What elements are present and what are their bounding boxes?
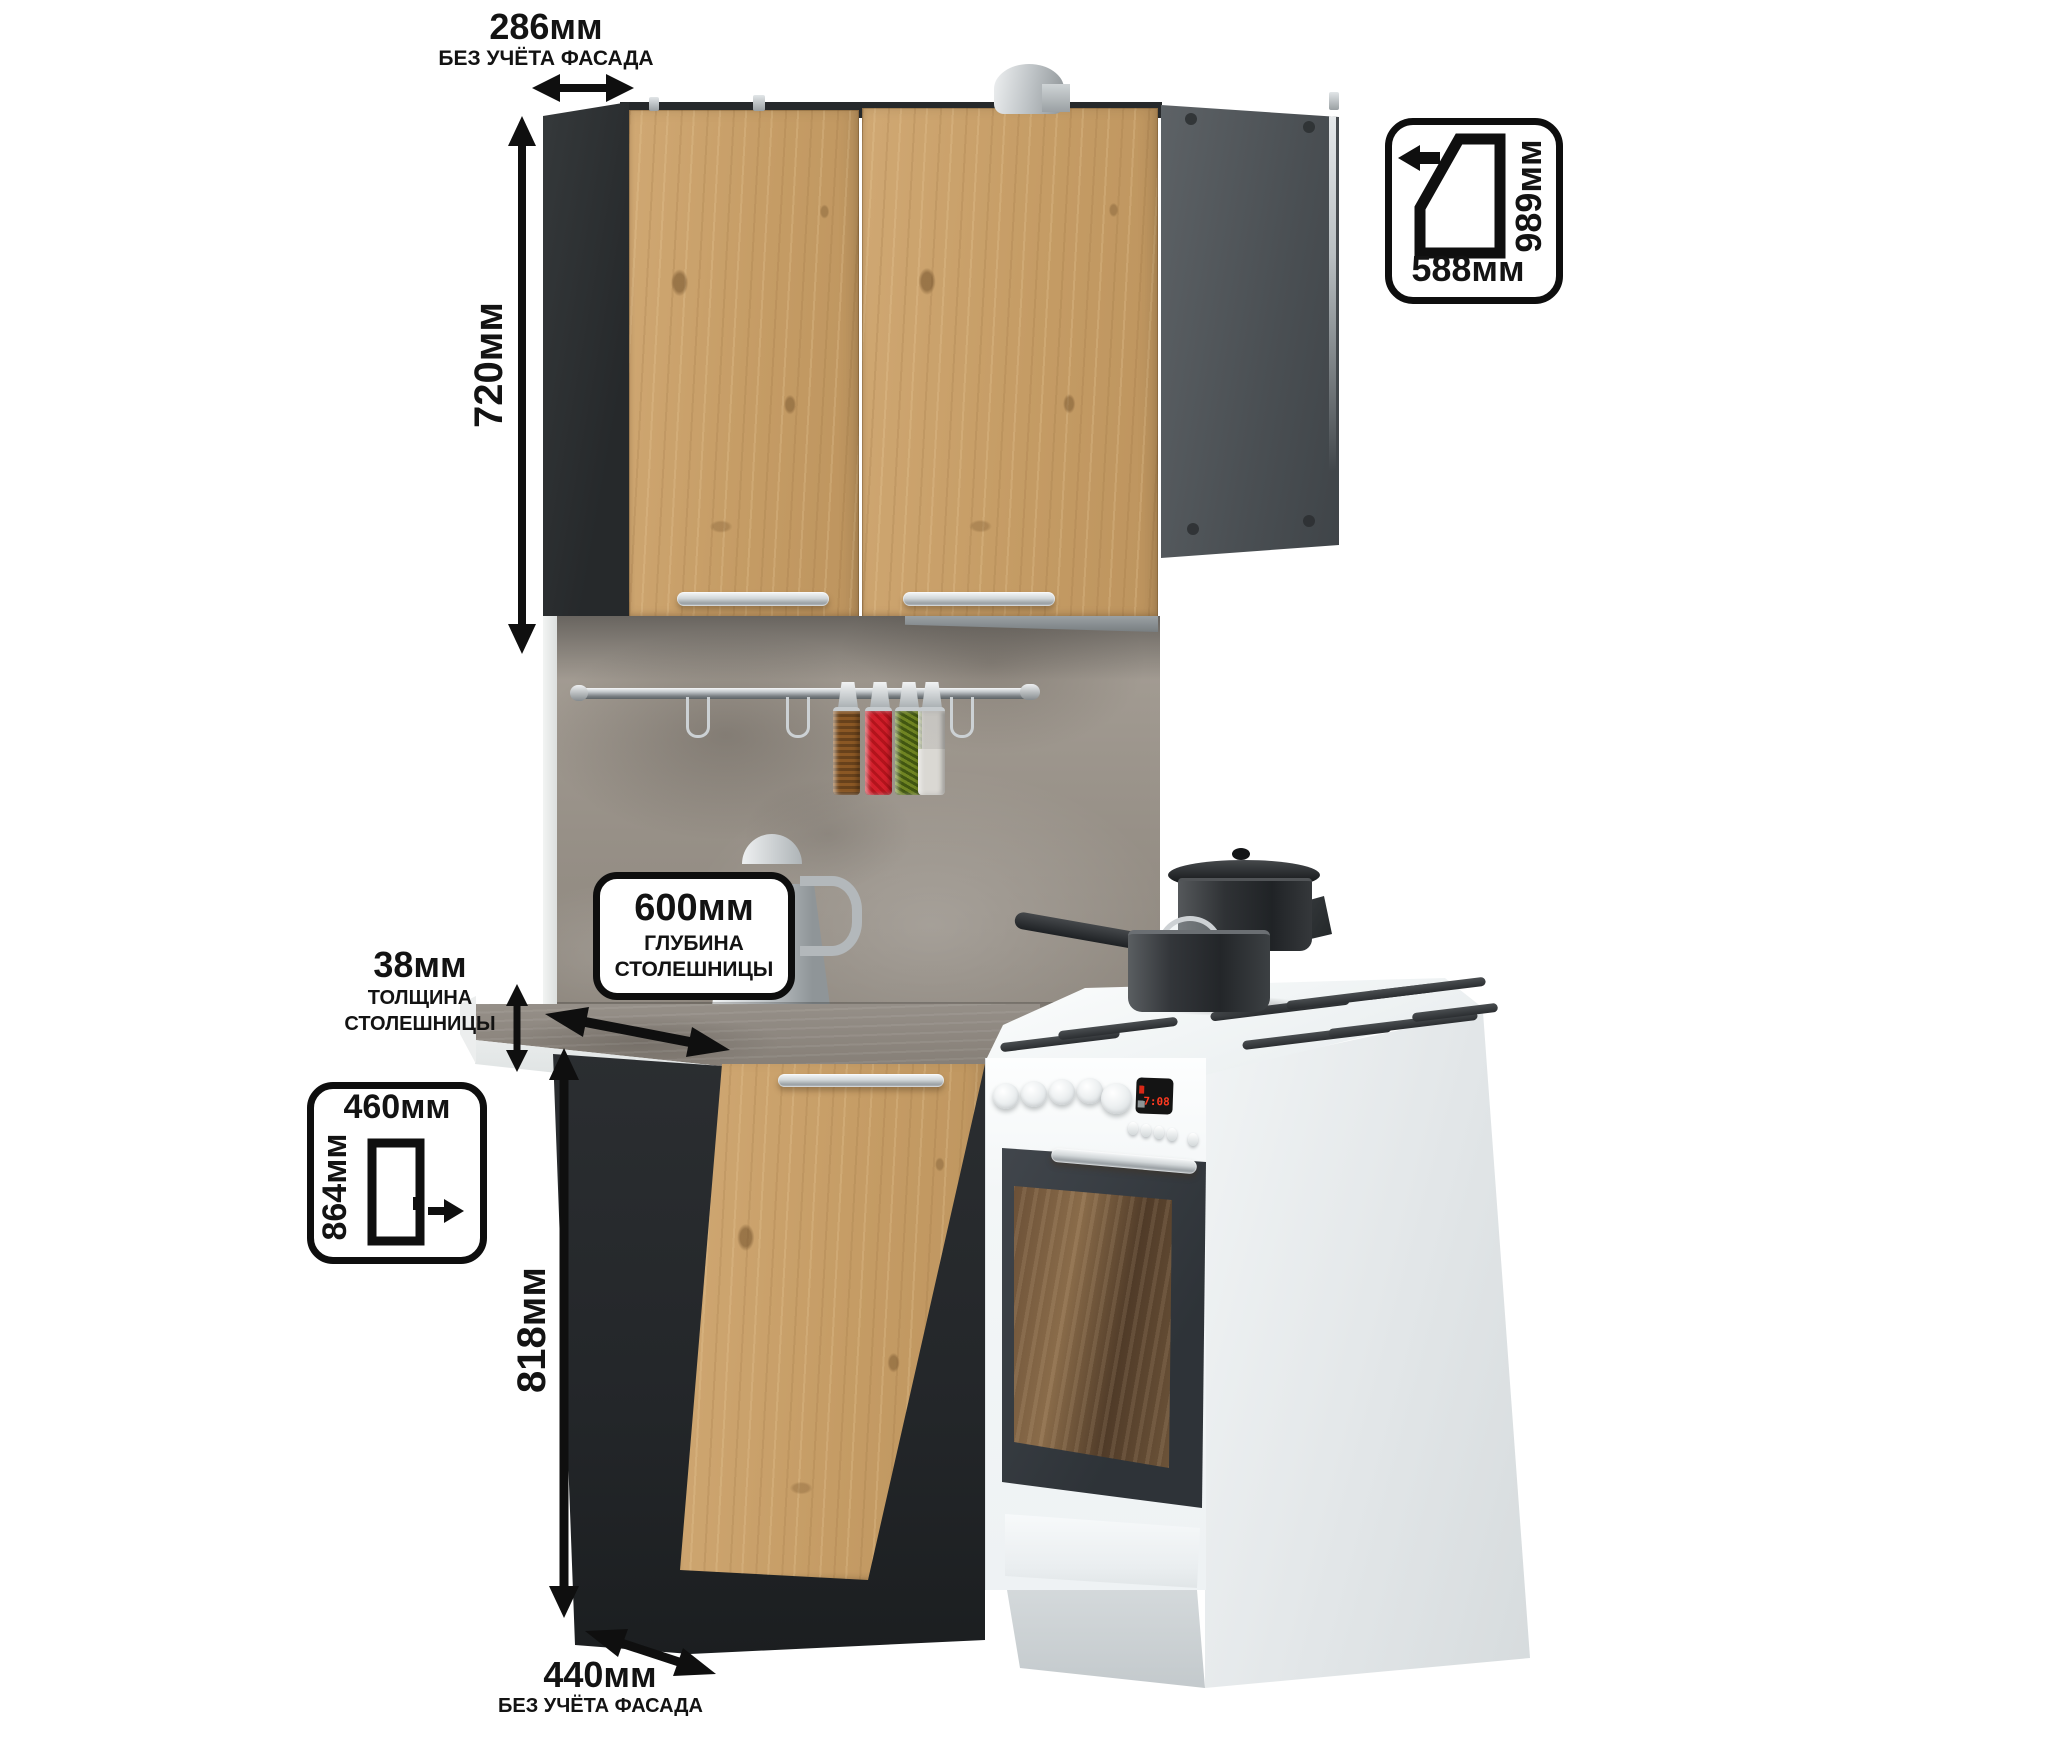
kettle-handle xyxy=(800,876,862,956)
spice-jar-pepper xyxy=(833,707,860,795)
screw-cap-icon xyxy=(1185,113,1197,125)
spice-jar-paprika xyxy=(865,707,892,795)
screw-cap-icon xyxy=(1303,515,1315,527)
mounting-bracket-icon xyxy=(1329,92,1339,110)
upper-door-left-handle xyxy=(677,592,829,606)
open-direction-left-arrow xyxy=(1398,145,1420,171)
facade-width: 460мм xyxy=(317,1090,477,1126)
kitchen-product-image: 7:08 286мм БЕЗ УЧЁТА ФАСАДА xyxy=(0,0,2048,1757)
thickness-arrow-icon xyxy=(502,982,532,1074)
counter-depth-caption2: СТОЛЕШНИЦЫ xyxy=(600,959,788,981)
stove-knob xyxy=(1049,1079,1075,1105)
base-height-value: 818мм xyxy=(511,1230,555,1430)
stove-side-panel xyxy=(1205,1006,1535,1690)
stove-button xyxy=(1188,1133,1198,1146)
stove-button xyxy=(1141,1124,1151,1137)
base-door-handle xyxy=(778,1074,944,1087)
stove-knob xyxy=(993,1083,1019,1109)
screw-cap-icon xyxy=(1187,523,1199,535)
oven-display: 7:08 xyxy=(1135,1077,1173,1114)
counter-thickness-caption2: СТОЛЕШНИЦЫ xyxy=(325,1014,515,1035)
upper-cabinet-left-side-panel xyxy=(543,102,629,654)
upper-cabinet-door-left xyxy=(629,110,859,618)
rail-end-cap xyxy=(570,685,588,701)
mounting-bracket-icon xyxy=(753,95,765,111)
wall-edge-strip xyxy=(543,616,557,1014)
stockpot-lid-knob xyxy=(1232,848,1250,860)
facade-height: 864мм xyxy=(318,1127,362,1247)
corner-plan-depth: 989мм xyxy=(1510,136,1554,256)
stove-button xyxy=(1154,1126,1164,1139)
upper-door-right-handle xyxy=(903,592,1055,606)
oven-door-glass xyxy=(1012,1180,1174,1472)
rail-end-cap xyxy=(1020,684,1040,700)
counter-thickness-value: 38мм xyxy=(340,946,500,984)
decor-pot-box xyxy=(1042,84,1070,112)
panel-edge-highlight xyxy=(1329,111,1336,471)
display-indicator-icon xyxy=(1139,1085,1144,1093)
rail-hook-icon xyxy=(686,697,710,738)
upper-height-value: 720мм xyxy=(468,265,512,465)
screw-cap-icon xyxy=(1303,121,1315,133)
width-arrow-icon xyxy=(530,70,636,106)
stove-knob xyxy=(1077,1078,1103,1104)
top-width-note: БЕЗ УЧЁТА ФАСАДА xyxy=(416,48,676,70)
rail-hook-icon xyxy=(950,697,974,738)
spice-jar-salt xyxy=(918,707,945,795)
counter-thickness-caption1: ТОЛЩИНА xyxy=(340,988,500,1009)
counter-depth-caption1: ГЛУБИНА xyxy=(600,933,788,955)
stove-button xyxy=(1128,1122,1138,1135)
bottom-width-value: 440мм xyxy=(534,1656,666,1694)
mounting-bracket-icon xyxy=(649,97,659,111)
counter-depth-badge: 600мм ГЛУБИНА СТОЛЕШНИЦЫ xyxy=(593,872,795,1000)
corner-plan-width: 588мм xyxy=(1398,250,1538,288)
saucepan-body xyxy=(1128,930,1270,1012)
counter-depth-value: 600мм xyxy=(600,889,788,929)
stove-button xyxy=(1167,1128,1177,1141)
upper-cabinet-door-right xyxy=(862,108,1158,618)
display-time: 7:08 xyxy=(1143,1095,1170,1109)
stove-knob xyxy=(1021,1081,1047,1107)
rail-hook-icon xyxy=(786,697,810,738)
oven-knob xyxy=(1101,1083,1132,1114)
bottom-width-note: БЕЗ УЧЁТА ФАСАДА xyxy=(498,1696,702,1717)
top-width-value: 286мм xyxy=(446,8,646,46)
upper-cabinet-right-angled-panel xyxy=(1161,103,1339,559)
